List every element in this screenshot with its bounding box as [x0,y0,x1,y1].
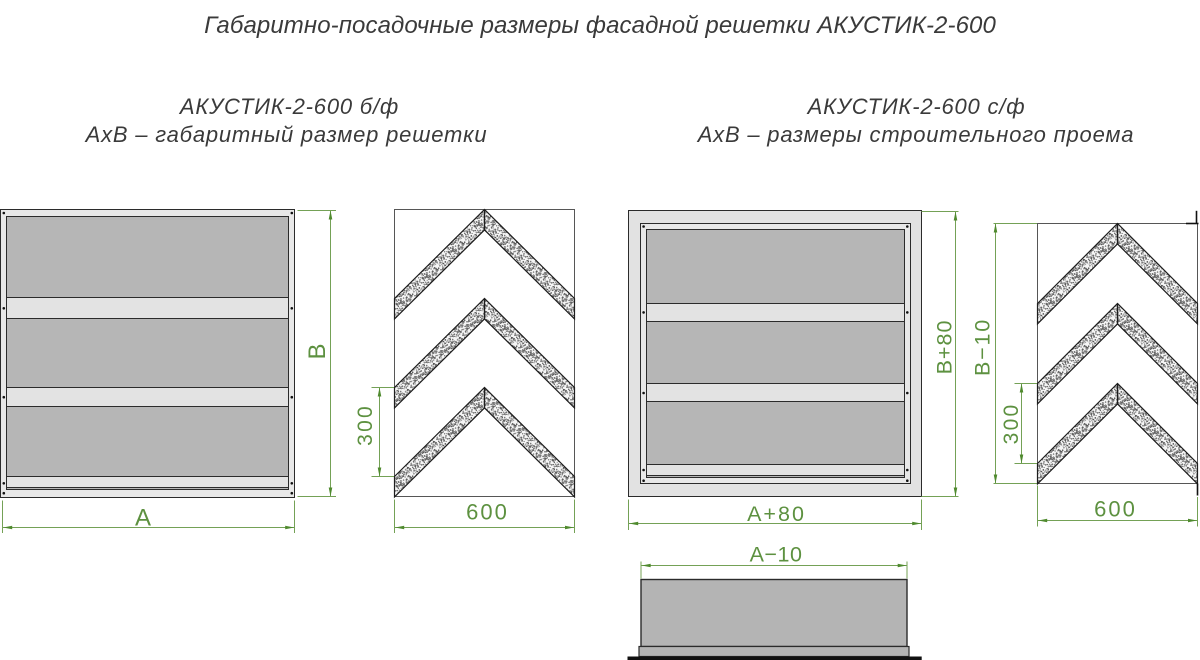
svg-text:А: А [135,505,151,532]
svg-text:300: 300 [354,404,377,446]
svg-text:АКУСТИК-2-600 б/ф: АКУСТИК-2-600 б/ф [178,94,399,119]
svg-text:АхВ – размеры строительного пр: АхВ – размеры строительного проема [696,122,1135,147]
svg-text:В+80: В+80 [933,320,957,375]
svg-text:600: 600 [466,500,509,525]
svg-text:А+80: А+80 [747,502,806,526]
svg-text:600: 600 [1094,497,1137,522]
svg-text:АКУСТИК-2-600 с/ф: АКУСТИК-2-600 с/ф [806,94,1026,119]
svg-text:В−10: В−10 [971,318,995,376]
svg-text:Габаритно-посадочные размеры ф: Габаритно-посадочные размеры фасадной ре… [204,12,996,39]
svg-text:В: В [304,343,331,359]
svg-text:А−10: А−10 [750,543,803,567]
svg-text:АхВ – габаритный размер решетк: АхВ – габаритный размер решетки [84,122,488,147]
svg-text:300: 300 [1000,403,1023,445]
